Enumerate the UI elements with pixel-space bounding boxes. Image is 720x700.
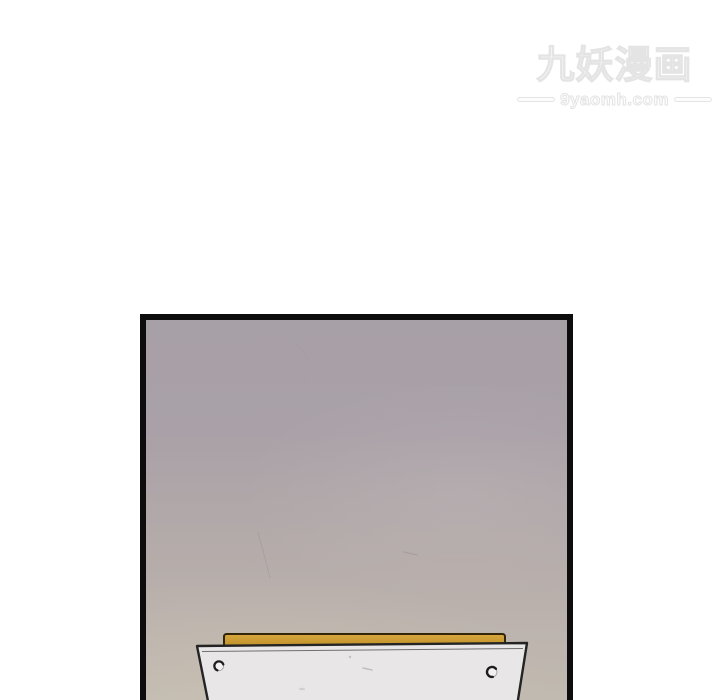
watermark-dash-left [517, 97, 555, 102]
wall-scratch-marks [258, 342, 417, 578]
watermark-logo-text: 九妖漫画 [517, 46, 712, 86]
watermark-url-row: 9yaomh.com [517, 90, 712, 110]
screw-left [214, 661, 223, 670]
watermark-dash-right [674, 97, 712, 102]
panel-wall [146, 320, 567, 700]
screw-right [487, 667, 497, 677]
desk-illustration [146, 320, 567, 700]
comic-panel [140, 314, 573, 700]
watermark-site-url: 9yaomh.com [560, 90, 669, 110]
watermark: 九妖漫画 9yaomh.com [517, 46, 712, 110]
